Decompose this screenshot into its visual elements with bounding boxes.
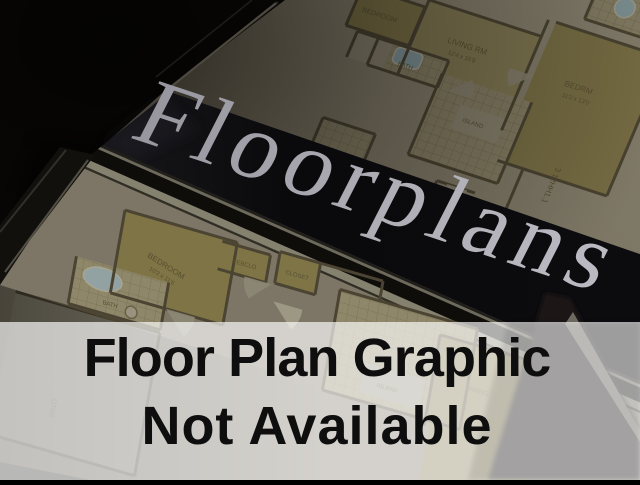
- svg-text:Floor Plan Graphic: Floor Plan Graphic: [84, 328, 551, 388]
- svg-text:Not Available: Not Available: [141, 396, 492, 456]
